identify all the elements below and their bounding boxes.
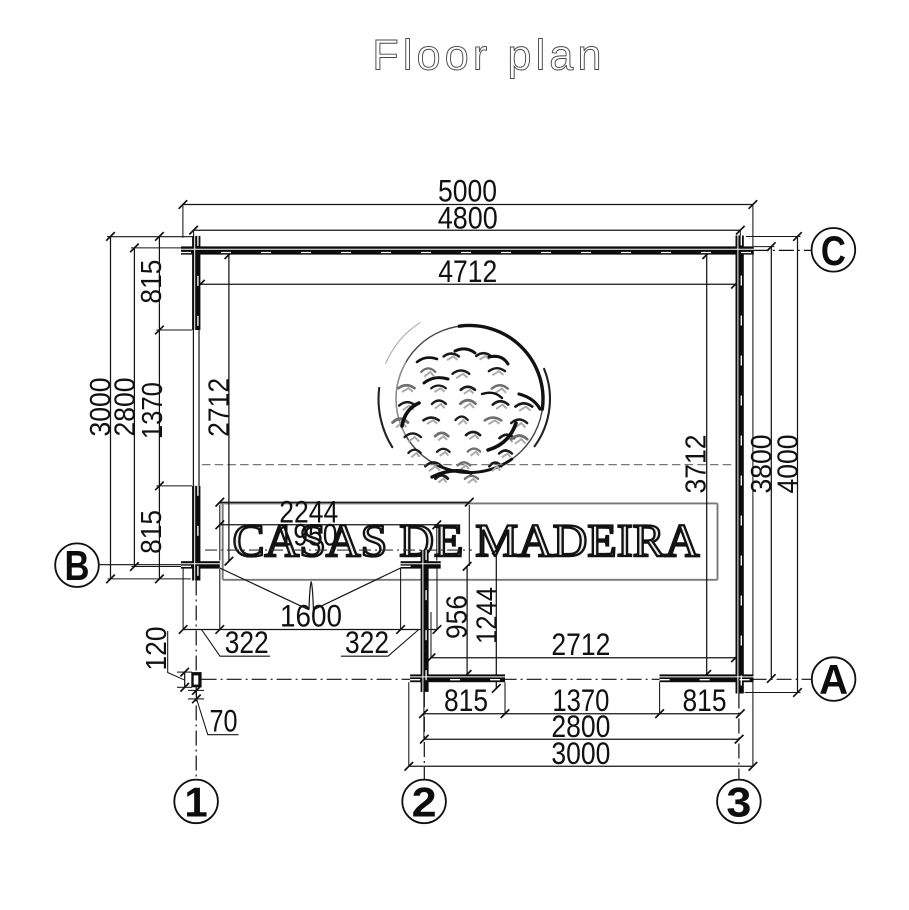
svg-text:956: 956 [442,595,474,639]
svg-text:815: 815 [683,682,727,718]
svg-text:1244: 1244 [471,587,503,644]
svg-text:322: 322 [345,624,389,660]
svg-text:70: 70 [210,703,238,739]
svg-text:2800: 2800 [110,378,142,437]
svg-text:815: 815 [136,260,168,304]
svg-text:4712: 4712 [438,253,497,289]
svg-text:A: A [819,656,848,703]
svg-text:815: 815 [444,682,488,718]
svg-text:3000: 3000 [551,735,610,771]
svg-text:C: C [821,227,846,274]
svg-text:322: 322 [225,624,269,660]
svg-text:4000: 4000 [773,435,805,494]
svg-text:2712: 2712 [204,378,236,437]
svg-text:B: B [65,542,90,589]
svg-text:120: 120 [141,627,173,671]
svg-text:815: 815 [136,510,168,554]
svg-text:2: 2 [412,778,437,825]
svg-text:1370: 1370 [137,382,169,439]
svg-text:Floor plan: Floor plan [372,32,605,80]
svg-text:2712: 2712 [551,626,610,662]
svg-text:3712: 3712 [681,435,713,494]
svg-text:4800: 4800 [438,200,498,236]
svg-text:3: 3 [726,778,751,825]
svg-text:1600: 1600 [280,598,342,634]
svg-text:1950: 1950 [279,517,338,553]
svg-text:1: 1 [184,778,207,825]
